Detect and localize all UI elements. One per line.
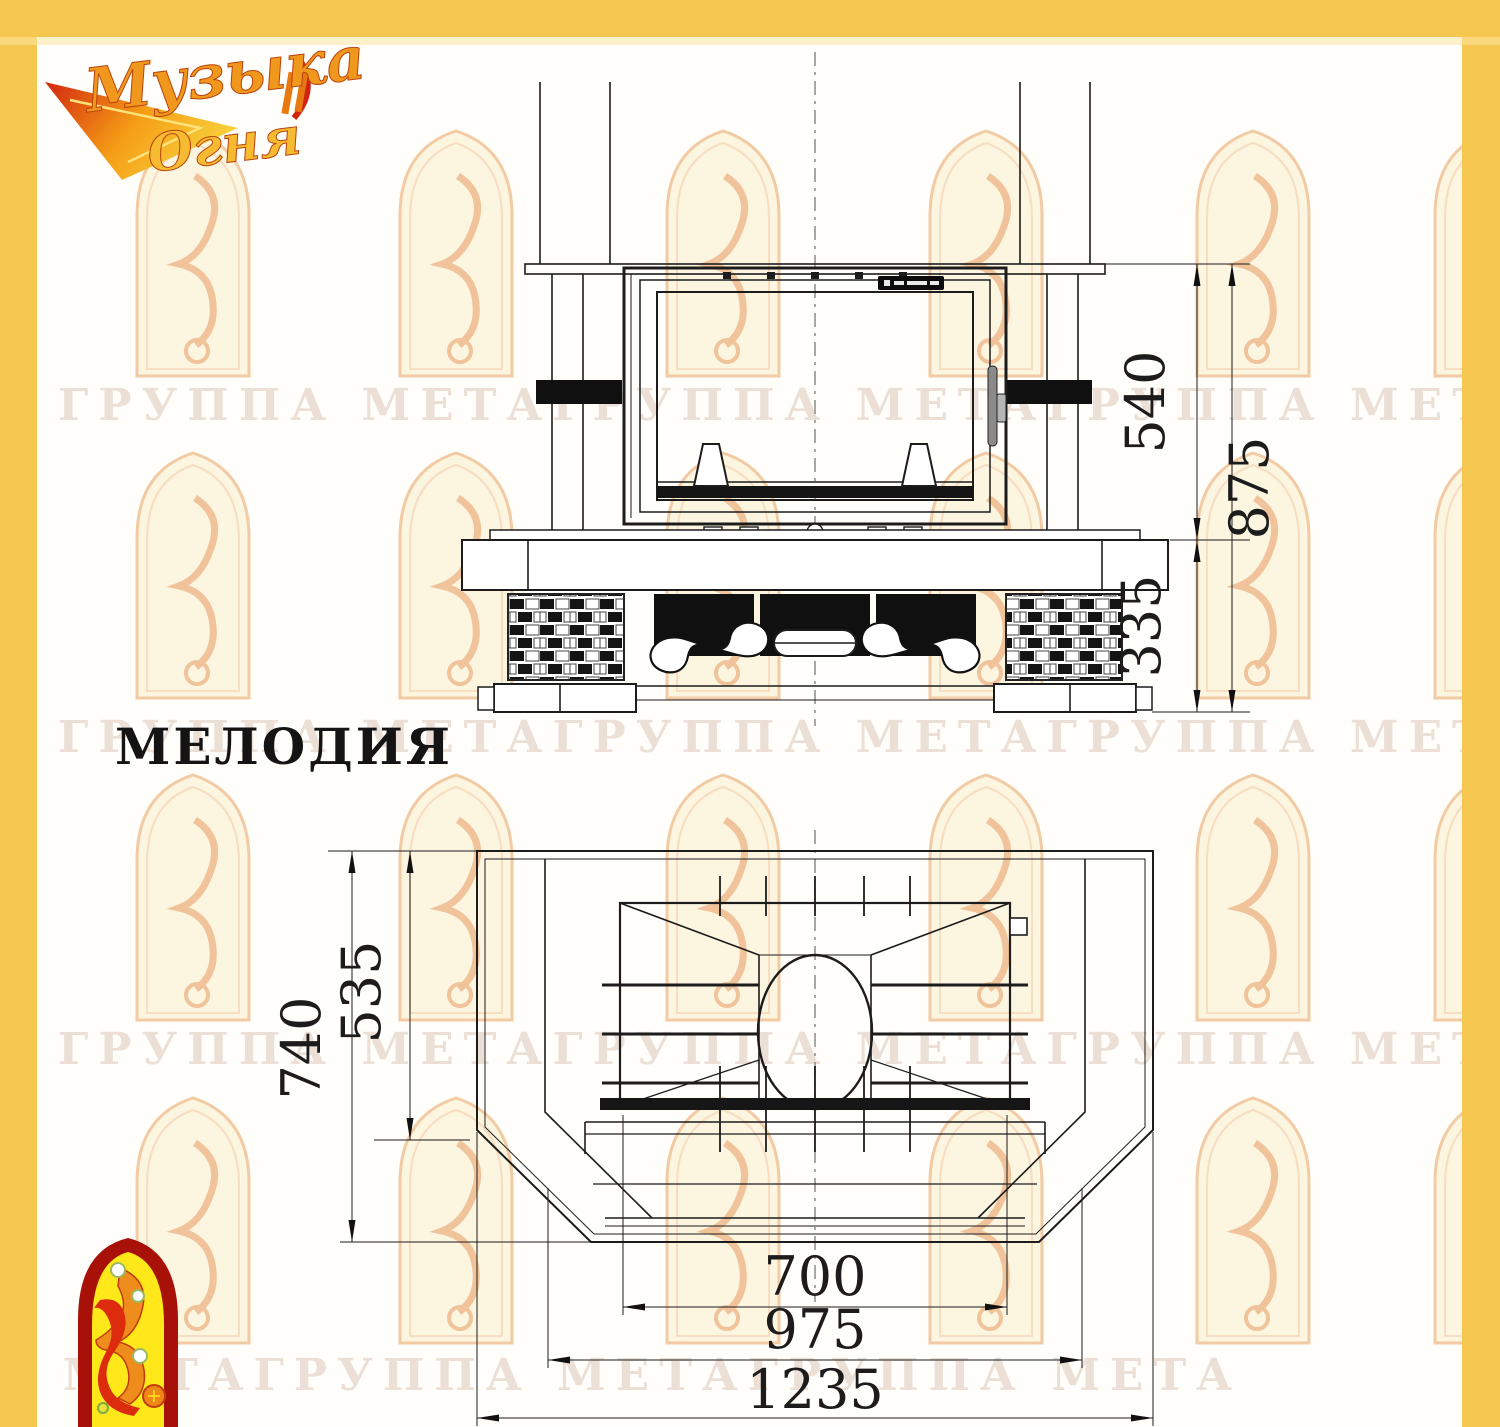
left-andiron xyxy=(694,444,728,486)
dim-label-740: 740 xyxy=(270,996,333,1099)
right-andiron xyxy=(902,444,936,486)
door-front-bar xyxy=(600,1098,1030,1110)
left-side-vent-band xyxy=(536,380,622,404)
dim-label-335: 335 xyxy=(1110,574,1173,677)
border-right xyxy=(1462,0,1500,1427)
border-left xyxy=(0,0,37,1427)
dim-label-975: 975 xyxy=(763,1298,866,1361)
fireplace-drawing: ГРУППА МЕТАГРУППА МЕТАГРУППА МЕТА ГРУППА… xyxy=(0,0,1500,1427)
watermark-text-row-4: ПА МЕТАГРУППА МЕТАГРУППА МЕТА xyxy=(0,1350,1242,1401)
catalog-page: ГРУППА МЕТАГРУППА МЕТАГРУППА МЕТА ГРУППА… xyxy=(0,0,1500,1427)
mantel-shelf xyxy=(462,530,1168,590)
brand-logo: Музыка Огня xyxy=(45,23,369,185)
dim-label-540: 540 xyxy=(1114,350,1177,453)
border-top xyxy=(0,0,1500,37)
door-handle xyxy=(988,366,1006,446)
right-side-vent-band xyxy=(1006,380,1092,404)
firebox-floor-bar xyxy=(657,486,973,498)
brand-plate xyxy=(878,276,944,290)
dim-label-1235: 1235 xyxy=(746,1358,883,1421)
side-handle-bump xyxy=(1010,918,1027,935)
dim-label-875: 875 xyxy=(1218,436,1281,539)
page-title: МЕЛОДИЯ xyxy=(115,717,453,776)
mascot-logo xyxy=(78,1238,178,1427)
dim-label-535: 535 xyxy=(330,940,393,1043)
right-brick-pillar xyxy=(1006,594,1122,680)
left-brick-pillar xyxy=(508,594,624,680)
watermark-text-row-1: ГРУППА МЕТАГРУППА МЕТАГРУППА МЕТА xyxy=(58,380,1500,431)
